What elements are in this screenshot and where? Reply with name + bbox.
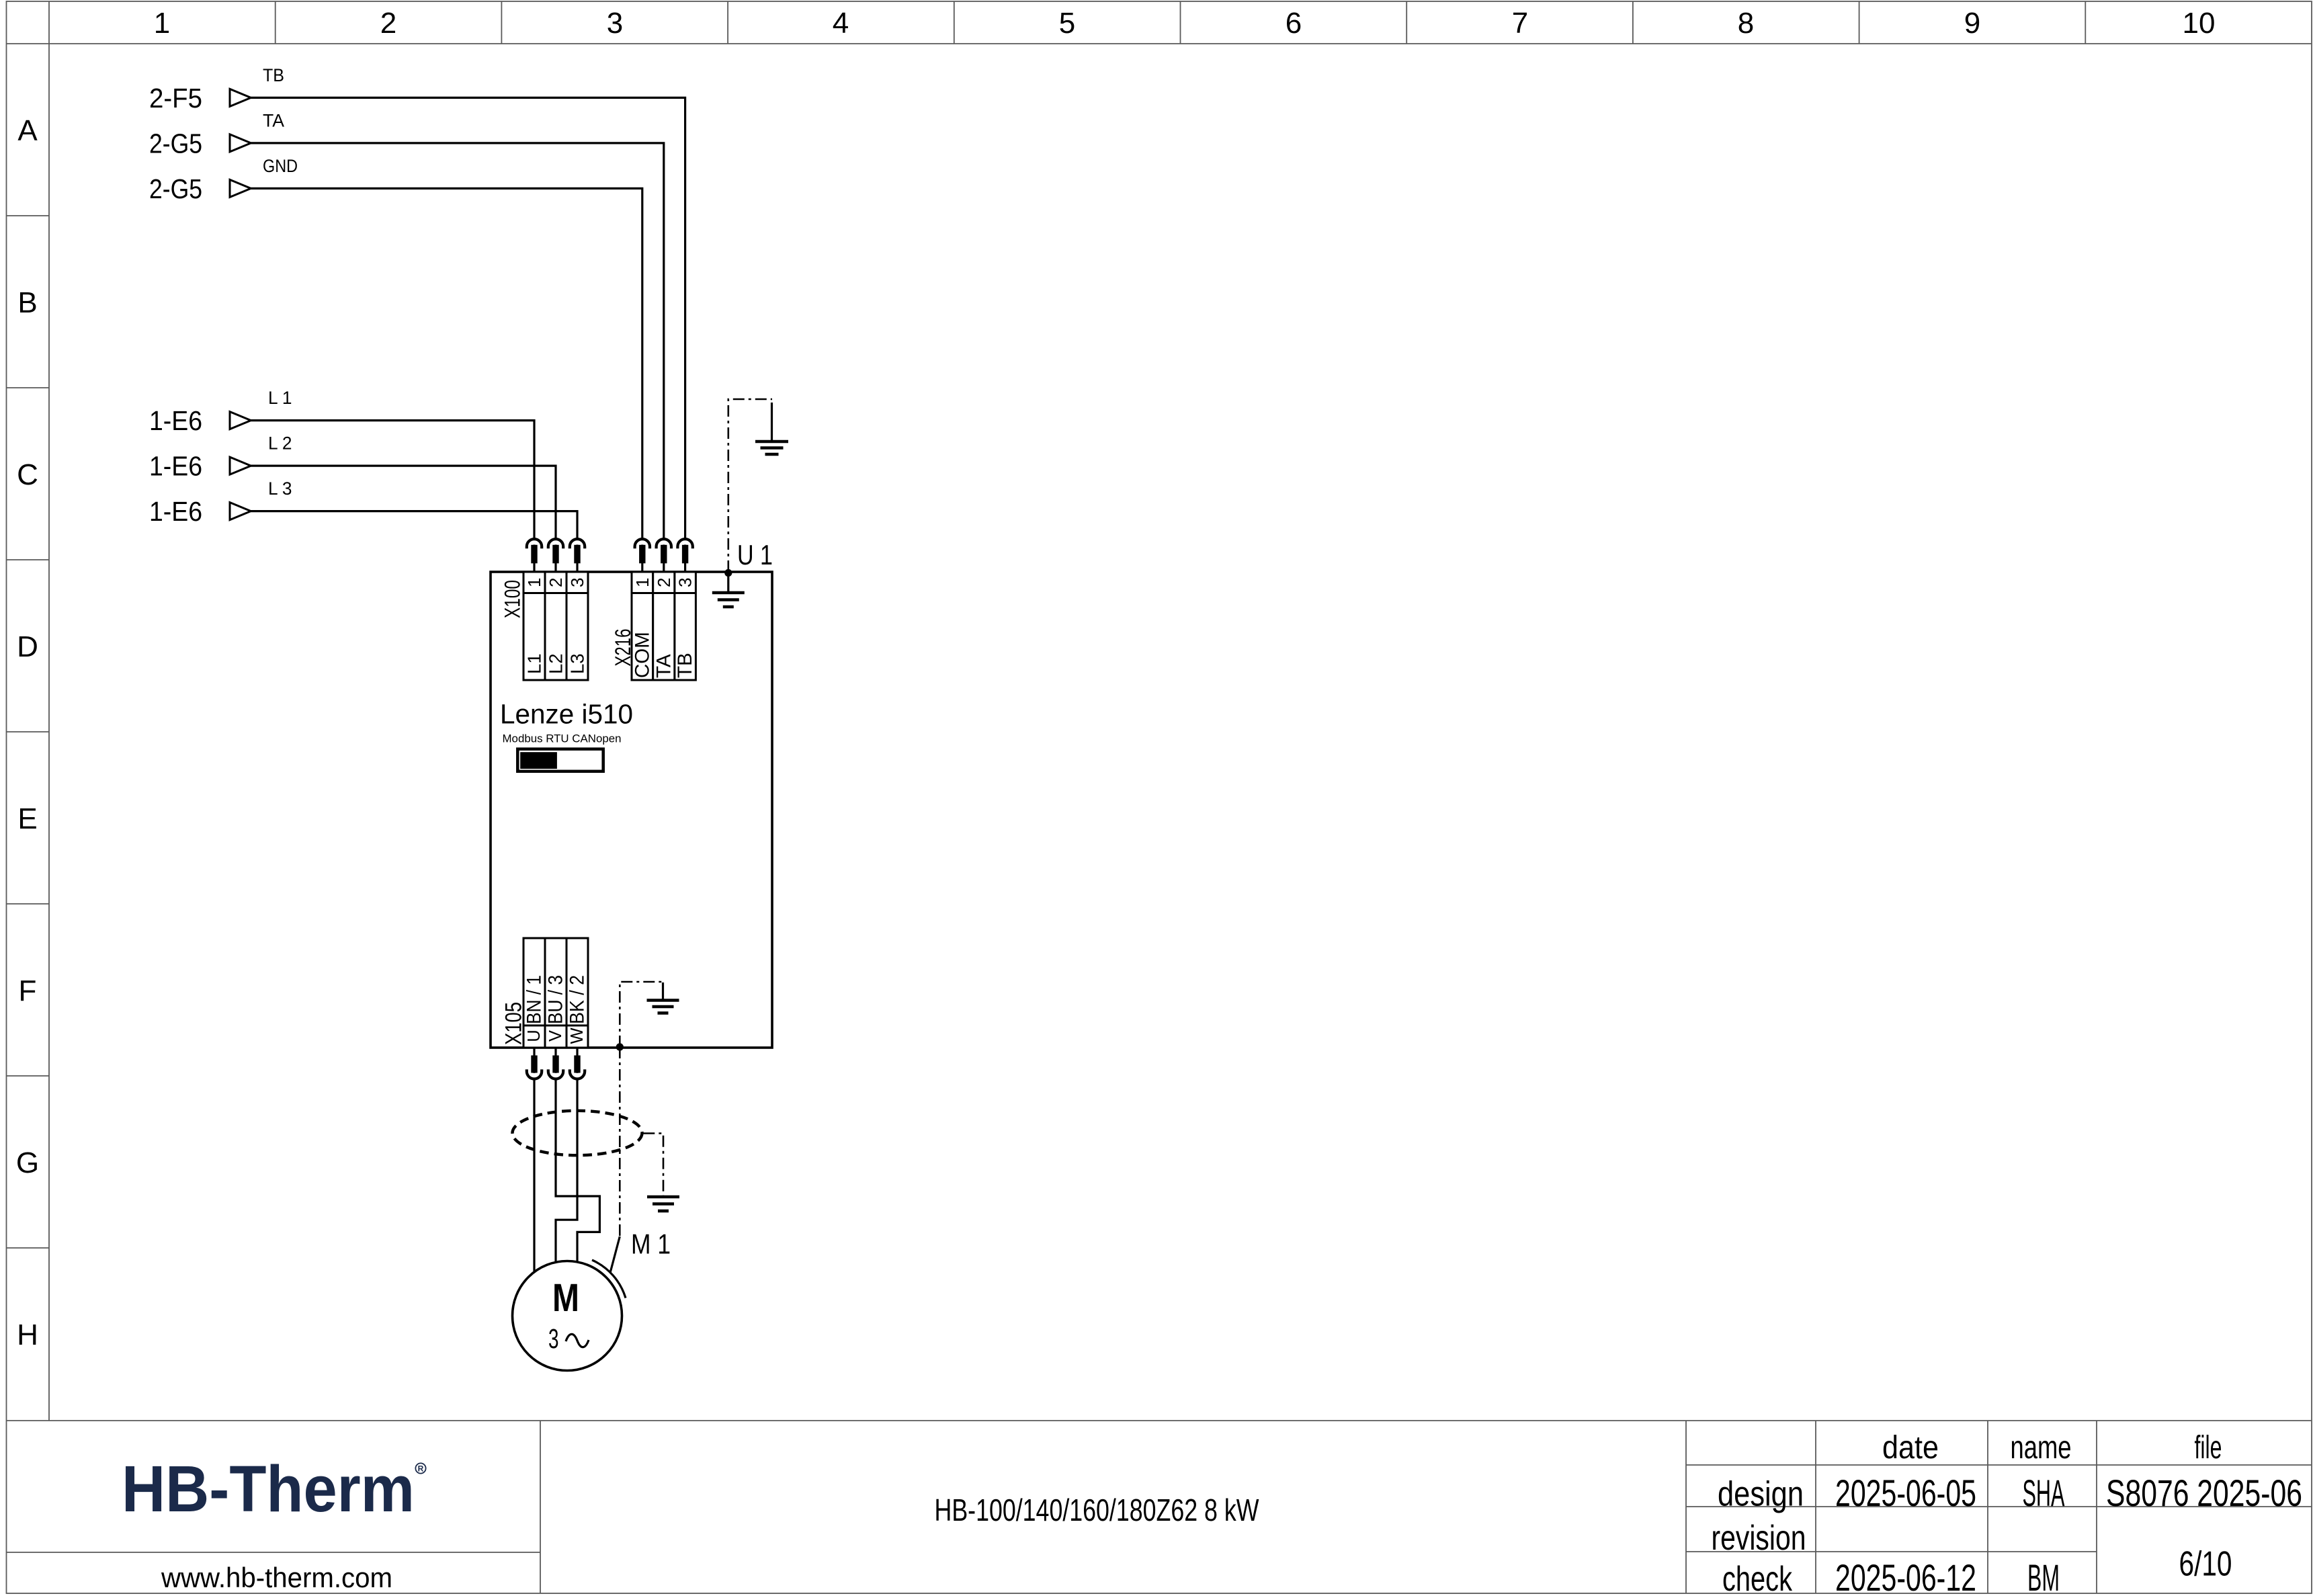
svg-text:Modbus RTU CANopen: Modbus RTU CANopen [503,732,622,745]
svg-text:10: 10 [2183,7,2216,40]
svg-text:revision: revision [1712,1519,1806,1558]
svg-text:2-G5: 2-G5 [149,128,202,159]
svg-text:2: 2 [654,578,674,587]
svg-text:2: 2 [380,7,396,40]
svg-text:2-F5: 2-F5 [149,83,202,114]
svg-text:2025-06-12: 2025-06-12 [1835,1556,1976,1596]
svg-text:design: design [1718,1475,1804,1514]
svg-text:2-G5: 2-G5 [149,173,202,204]
svg-text:BK / 2: BK / 2 [566,975,589,1024]
svg-text:6: 6 [1286,7,1302,40]
svg-text:COM: COM [631,632,653,678]
svg-text:A: A [17,114,38,147]
svg-text:U: U [525,1030,544,1042]
svg-text:TA: TA [263,111,284,131]
svg-text:1-E6: 1-E6 [149,451,202,482]
svg-text:GND: GND [263,156,298,176]
svg-text:5: 5 [1059,7,1075,40]
svg-text:6/10: 6/10 [2179,1545,2232,1584]
svg-text:D: D [17,630,38,663]
svg-text:L 2: L 2 [268,433,292,454]
svg-text:SHA: SHA [2023,1472,2065,1514]
svg-text:BM: BM [2027,1556,2060,1596]
svg-text:L1: L1 [524,653,545,674]
svg-text:TB: TB [674,653,696,678]
svg-text:L 1: L 1 [268,388,292,408]
svg-text:www.hb-therm.com: www.hb-therm.com [161,1562,392,1593]
svg-text:1: 1 [632,578,653,587]
svg-text:BN / 1: BN / 1 [523,975,546,1024]
svg-text:1: 1 [524,578,544,587]
svg-text:HB-Therm: HB-Therm [122,1452,415,1525]
svg-text:Lenze i510: Lenze i510 [500,698,633,729]
svg-text:7: 7 [1512,7,1528,40]
svg-text:H: H [17,1318,38,1351]
svg-text:1: 1 [154,7,170,40]
svg-text:L 3: L 3 [268,478,292,499]
svg-text:R: R [418,1464,424,1474]
svg-text:3: 3 [567,578,587,587]
svg-text:name: name [2011,1430,2072,1466]
svg-text:4: 4 [833,7,849,40]
svg-text:BU / 3: BU / 3 [545,975,567,1024]
svg-text:U 1: U 1 [737,539,773,571]
svg-text:9: 9 [1964,7,1980,40]
svg-text:L3: L3 [567,653,588,674]
svg-text:V: V [546,1030,565,1042]
svg-text:2025-06-05: 2025-06-05 [1835,1472,1976,1514]
svg-text:C: C [17,458,38,491]
svg-text:E: E [17,802,37,835]
svg-text:W: W [568,1027,587,1044]
svg-text:M 1: M 1 [631,1228,671,1260]
svg-text:1-E6: 1-E6 [149,405,202,436]
svg-text:G: G [16,1146,39,1179]
svg-text:TB: TB [263,65,284,85]
svg-text:3: 3 [607,7,623,40]
svg-text:3: 3 [548,1323,559,1354]
svg-text:8: 8 [1738,7,1754,40]
svg-text:F: F [19,974,37,1007]
svg-text:date: date [1882,1430,1939,1466]
svg-text:S8076 2025-06: S8076 2025-06 [2106,1472,2302,1514]
svg-text:3: 3 [675,578,696,587]
svg-text:file: file [2195,1430,2222,1466]
svg-text:B: B [17,286,37,319]
svg-text:TA: TA [653,654,675,678]
svg-text:check: check [1722,1560,1793,1596]
svg-text:M: M [552,1276,579,1320]
svg-text:2: 2 [546,578,566,587]
svg-text:HB-100/140/160/180Z62 8 kW: HB-100/140/160/180Z62 8 kW [935,1493,1259,1527]
svg-text:X100: X100 [501,580,525,618]
svg-text:1-E6: 1-E6 [149,496,202,527]
svg-text:L2: L2 [546,653,566,674]
